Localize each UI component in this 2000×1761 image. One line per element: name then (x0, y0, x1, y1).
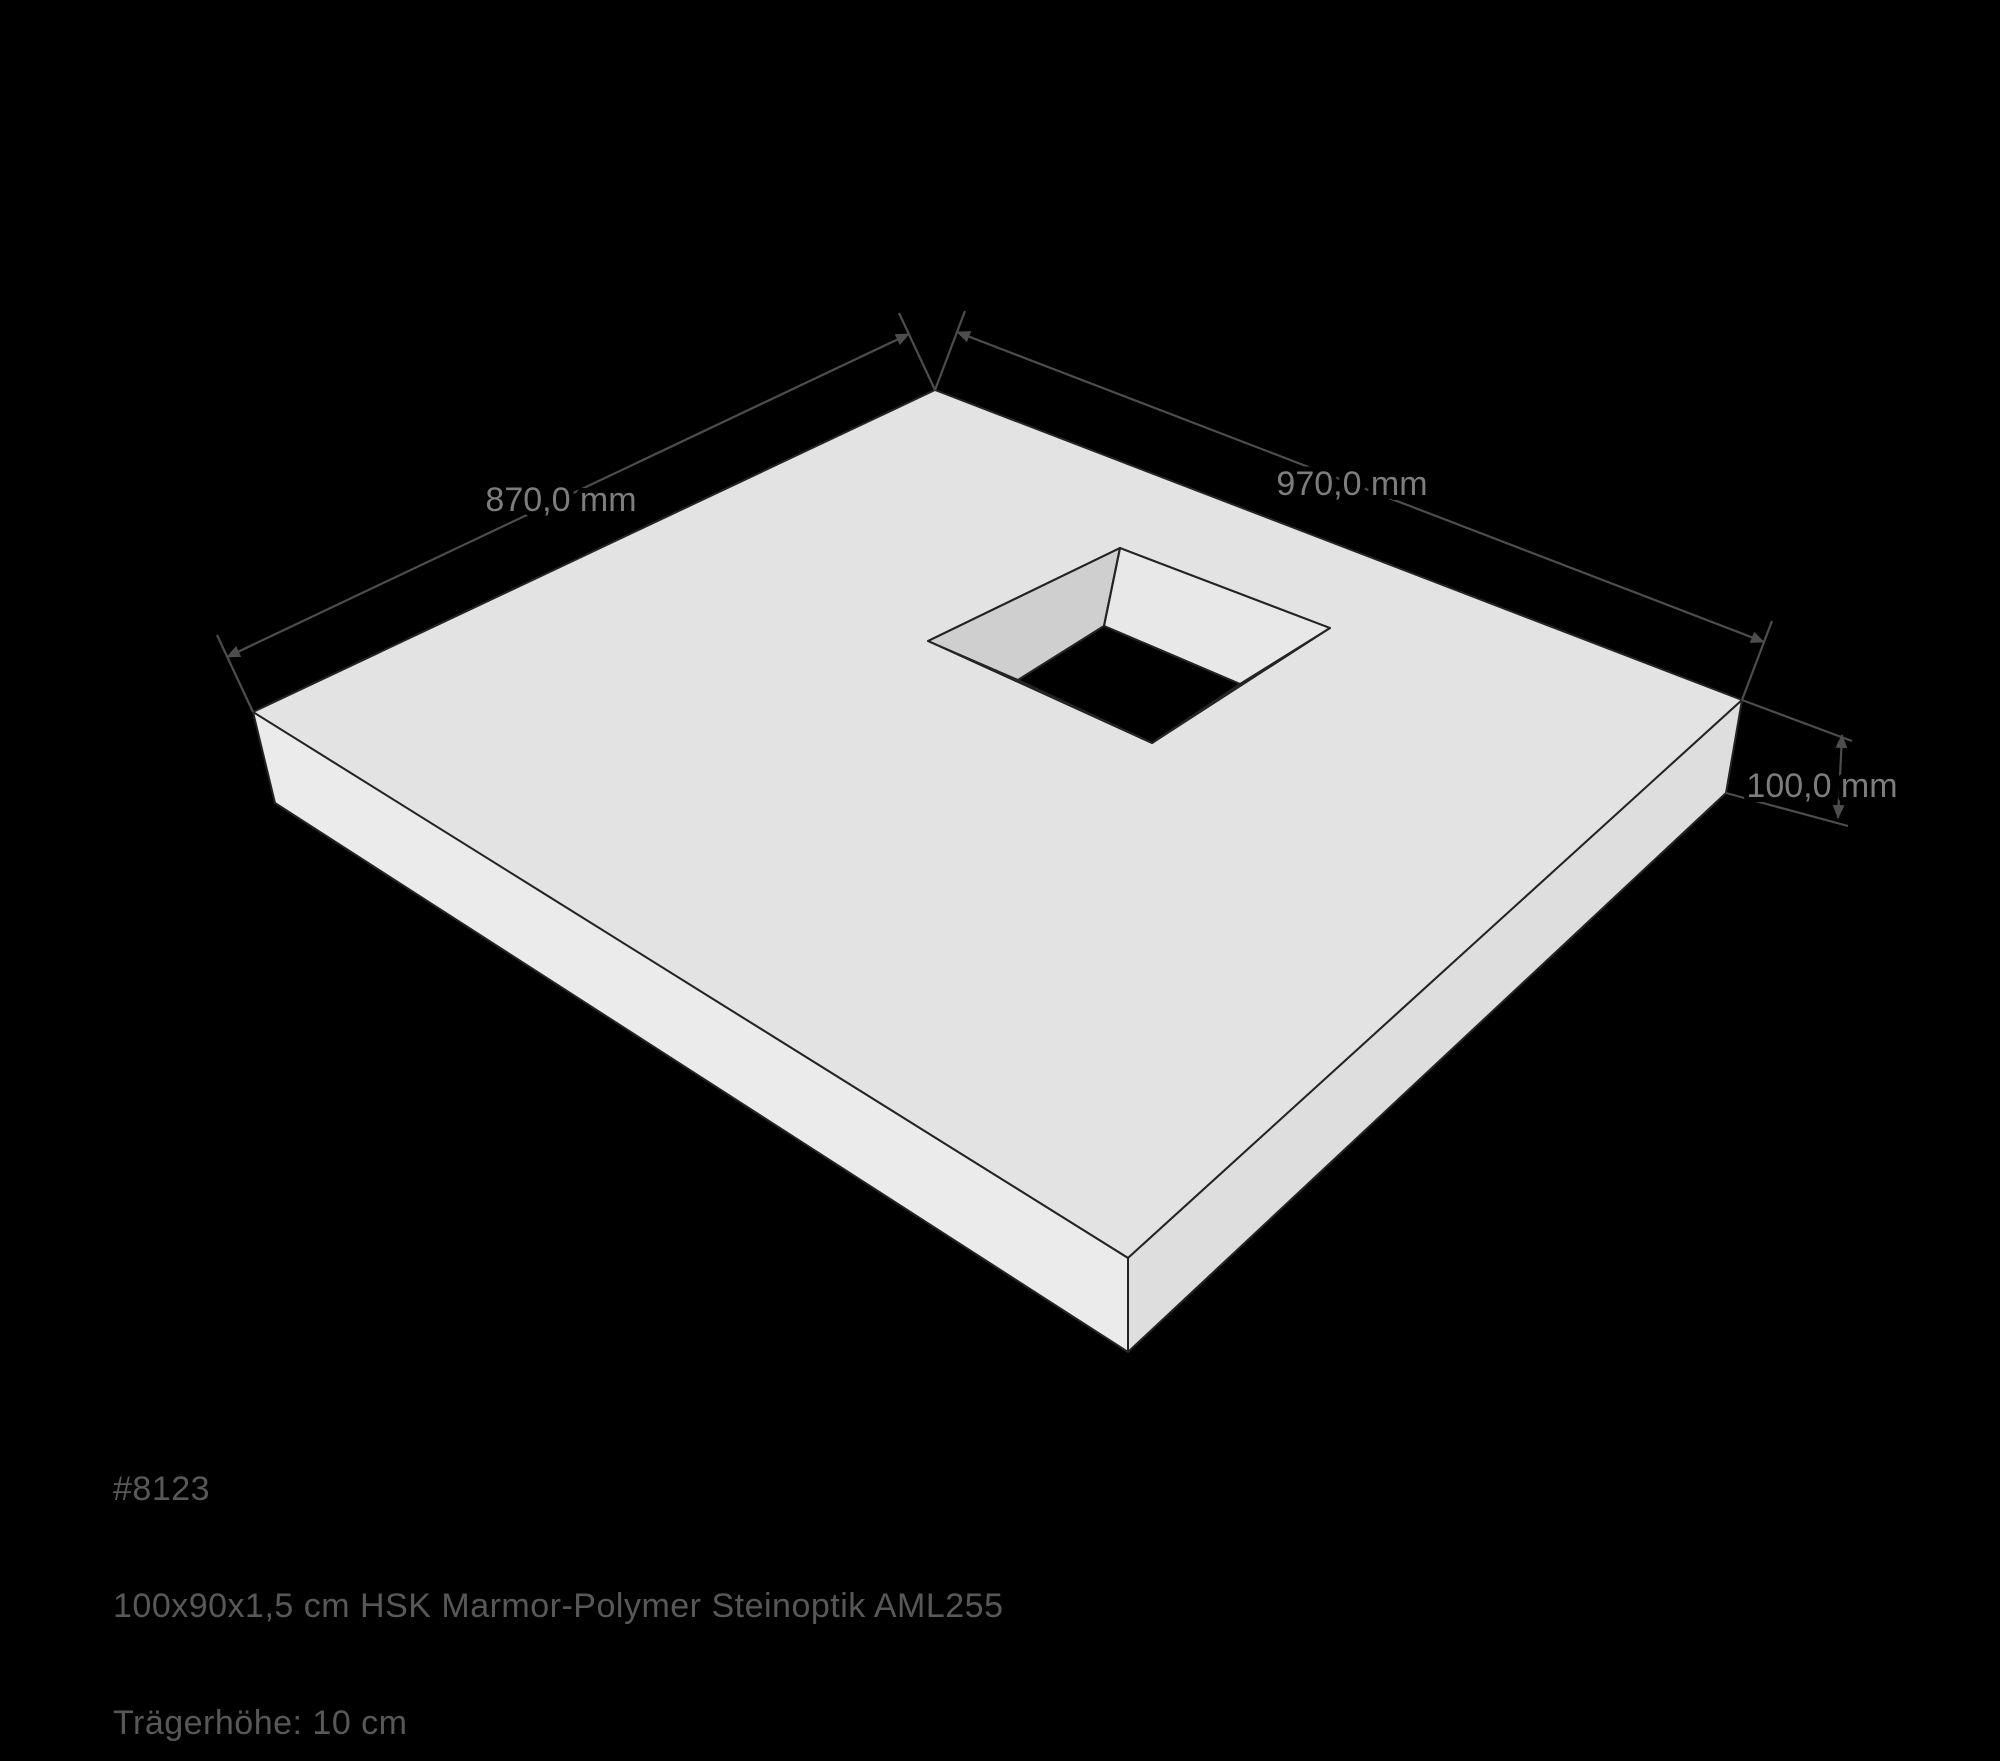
slab-top-face (253, 390, 1742, 1258)
product-title: 100x90x1,5 cm HSK Marmor-Polymer Steinop… (113, 1587, 1003, 1626)
dimension-height: 100,0 mm (1726, 700, 1898, 826)
dimension-height-ext-top (1742, 700, 1852, 741)
dimension-depth-right-label: 970,0 mm (1276, 465, 1427, 503)
dimension-depth-right-ext-top (935, 311, 965, 390)
dimension-depth-right-ext-bottom (1742, 621, 1772, 700)
dimension-height-label: 100,0 mm (1746, 767, 1897, 805)
dimension-width-left-ext-top (899, 313, 935, 390)
drawing-page: 870,0 mm 970,0 mm 100,0 mm #8123 100x90x… (0, 0, 2000, 1761)
product-caption: #8123 100x90x1,5 cm HSK Marmor-Polymer S… (113, 1392, 1003, 1761)
product-carrier-height: Trägerhöhe: 10 cm (113, 1704, 1003, 1743)
product-id: #8123 (113, 1470, 1003, 1509)
dimension-width-left-label: 870,0 mm (485, 481, 636, 519)
